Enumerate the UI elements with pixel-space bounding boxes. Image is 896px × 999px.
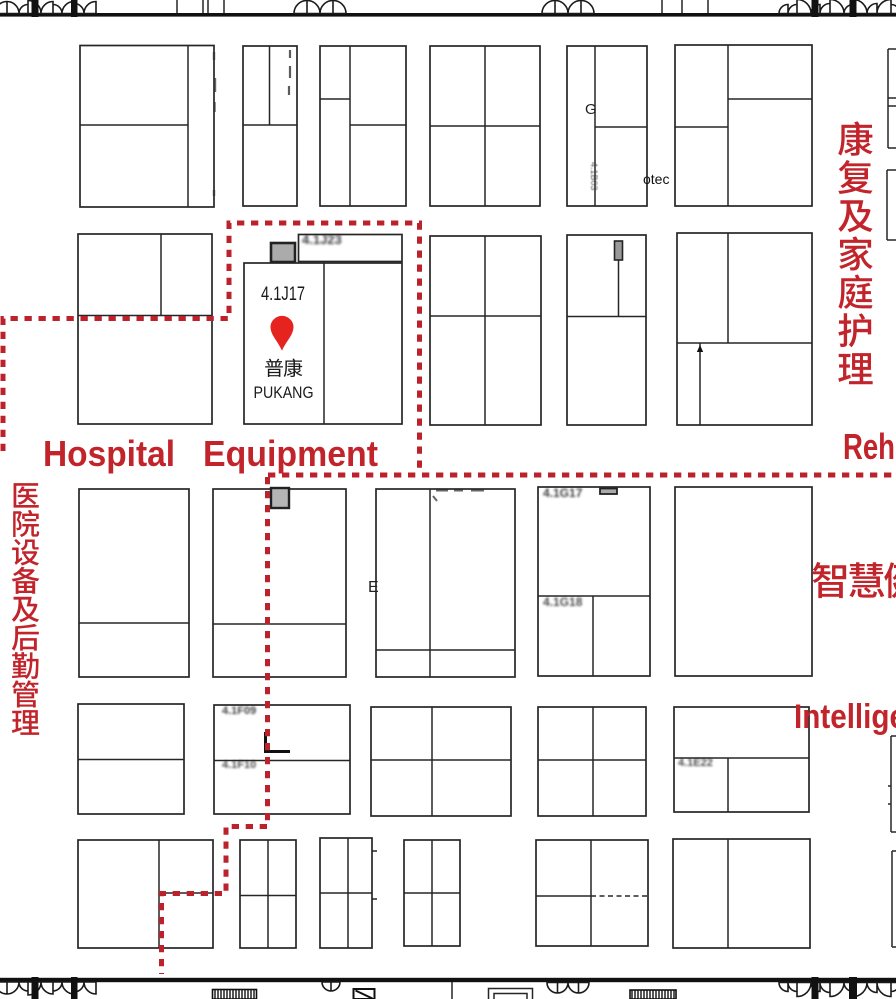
svg-text:otec: otec [643,171,669,187]
svg-text:4.1F09: 4.1F09 [222,705,256,717]
svg-text:G: G [585,101,597,118]
svg-text:Hospital: Hospital [43,433,175,474]
svg-text:Reh: Reh [843,426,895,467]
svg-text:4.1F10: 4.1F10 [222,759,256,771]
svg-text:4.1J17: 4.1J17 [261,284,305,305]
svg-text:E: E [368,579,379,596]
svg-text:4.1J23: 4.1J23 [302,232,342,247]
svg-text:Intellige: Intellige [794,698,896,736]
svg-text:4.1G18: 4.1G18 [543,595,583,609]
svg-text:4.1G17: 4.1G17 [543,486,583,500]
svg-text:PUKANG: PUKANG [254,383,314,402]
svg-text:Equipment: Equipment [203,433,378,474]
svg-text:4.1B03: 4.1B03 [589,162,599,191]
svg-text:4.1E22: 4.1E22 [678,757,713,769]
